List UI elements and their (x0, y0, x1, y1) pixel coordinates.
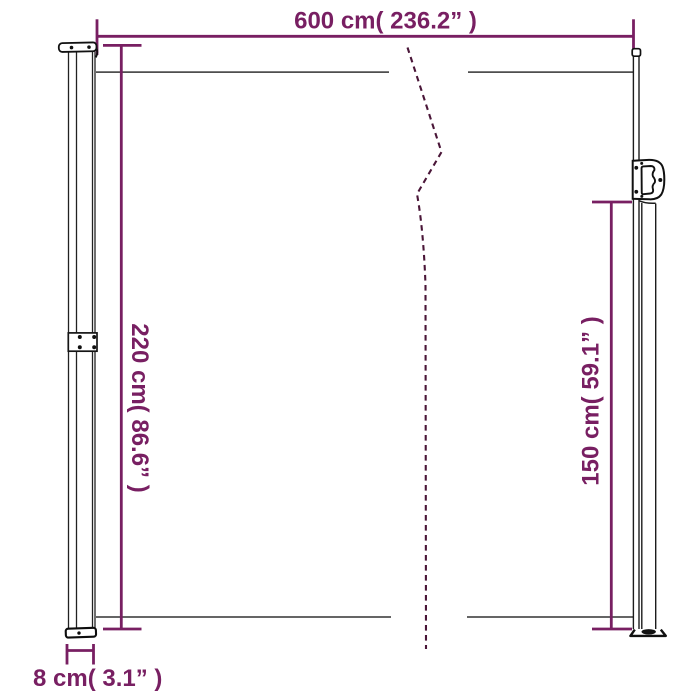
svg-text:8 cm( 3.1” ): 8 cm( 3.1” ) (33, 665, 162, 692)
svg-text:220 cm( 86.6” ): 220 cm( 86.6” ) (126, 323, 153, 492)
svg-text:150 cm( 59.1” ): 150 cm( 59.1” ) (578, 316, 605, 485)
svg-text:600 cm( 236.2” ): 600 cm( 236.2” ) (294, 8, 477, 35)
